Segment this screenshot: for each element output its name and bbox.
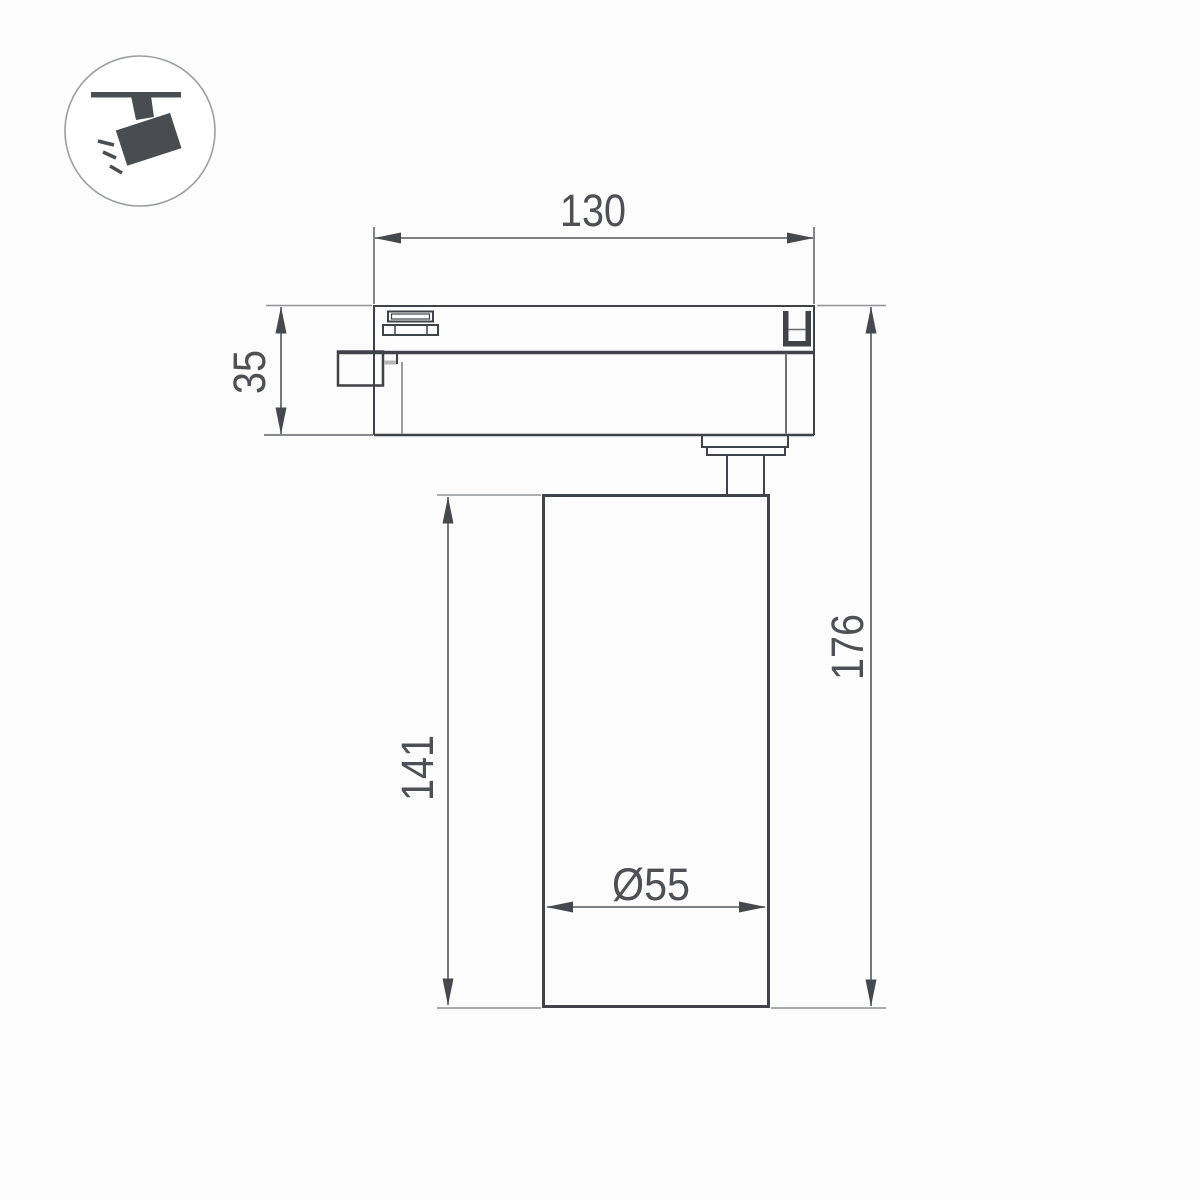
swivel-stem — [727, 455, 764, 494]
end-cap-bottom-bar — [783, 341, 811, 347]
arrowhead-right — [787, 233, 814, 244]
end-cap-left-bar — [783, 311, 789, 346]
mount-type-icon — [65, 56, 215, 206]
dim-label-track-width: 130 — [560, 185, 626, 236]
arrowhead-left — [374, 233, 401, 244]
arrowhead-left — [546, 902, 573, 913]
latch-hook-shadow — [384, 361, 396, 365]
dim-track-width: 130 — [374, 185, 814, 304]
dim-total-height: 176 — [771, 306, 886, 1009]
mount-step-1 — [702, 435, 788, 447]
dimension-drawing: 130 35 141 176 Ø55 — [0, 0, 1200, 1200]
mount-step-2 — [707, 447, 785, 455]
arrowhead-right — [739, 902, 766, 913]
arrowhead-down — [866, 980, 877, 1007]
dim-label-adapter-height: 35 — [224, 350, 275, 394]
contact-clip-upper-inner — [392, 314, 430, 319]
arrowhead-up — [443, 497, 454, 524]
end-cap-detail — [783, 311, 811, 347]
arrowhead-up — [866, 307, 877, 334]
contact-clips — [383, 312, 438, 336]
dim-label-total-height: 176 — [822, 614, 873, 680]
dim-label-body-height: 141 — [392, 735, 443, 801]
arrowhead-down — [276, 408, 287, 435]
dim-body-height: 141 — [392, 495, 541, 1008]
release-latch — [338, 352, 383, 386]
dim-adapter-height: 35 — [224, 306, 373, 436]
lamp-cylinder — [544, 496, 769, 1007]
dim-body-diameter: Ø55 — [546, 859, 766, 913]
arrowhead-up — [276, 307, 287, 334]
contact-clip-upper — [388, 312, 433, 322]
drawing-canvas: 130 35 141 176 Ø55 — [0, 0, 1200, 1200]
contact-clip-lower — [383, 325, 438, 335]
track-adapter — [338, 306, 815, 494]
arrowhead-down — [443, 979, 454, 1006]
end-cap-right-bar — [806, 311, 812, 346]
dim-label-body-diameter: Ø55 — [612, 859, 690, 910]
